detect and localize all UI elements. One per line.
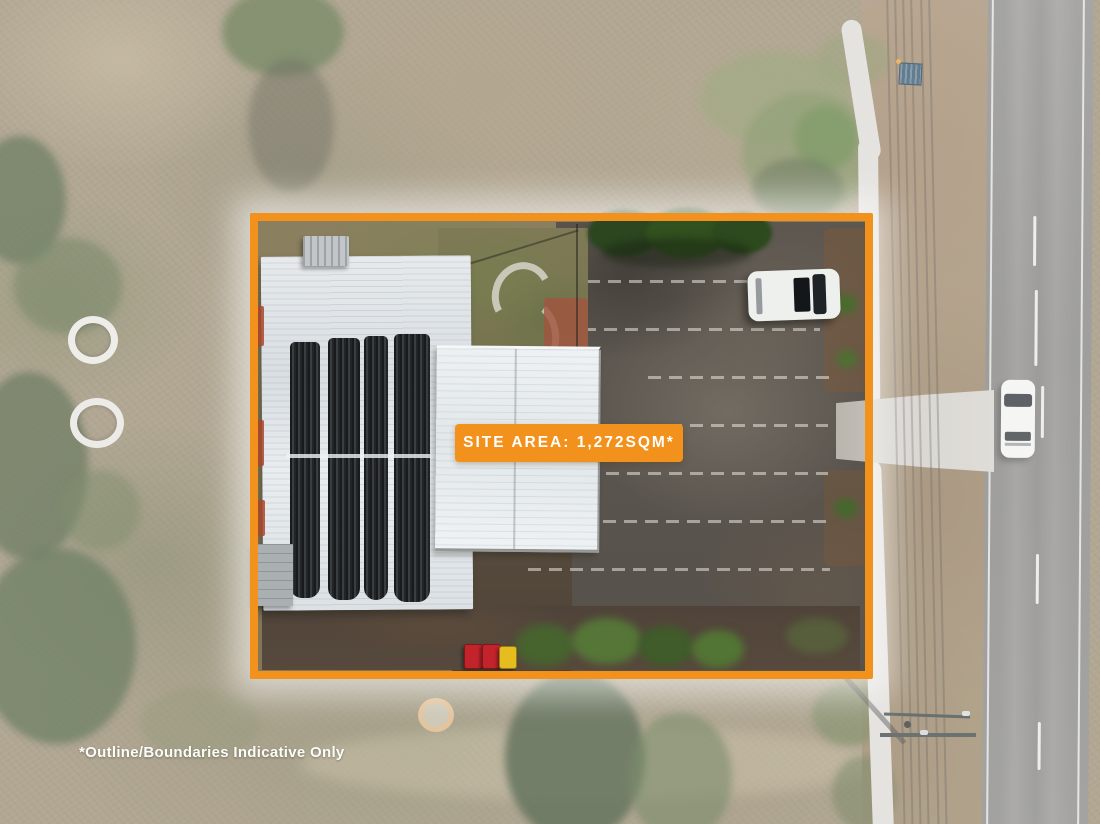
power-pole <box>904 721 911 728</box>
car-on-road <box>1001 380 1036 458</box>
road-center-dash <box>1041 386 1044 438</box>
road-center-dash <box>1033 216 1036 266</box>
ring-marker <box>68 316 118 364</box>
crossarm-insulator <box>920 730 928 735</box>
tree-shadow <box>248 58 334 192</box>
bush-shadow <box>752 158 844 220</box>
ring-marker <box>70 398 124 448</box>
aerial-photo: SITE AREA: 1,272SQM* *Outline/Boundaries… <box>0 0 1100 824</box>
site-area-label: SITE AREA: 1,272SQM* <box>455 424 683 462</box>
utility-sign-box <box>898 62 922 85</box>
road-center-dash <box>1038 722 1041 770</box>
tree-canopy <box>60 470 140 550</box>
crossarm-insulator <box>962 711 970 716</box>
road <box>982 0 1094 824</box>
car-windshield <box>1004 394 1032 407</box>
ring-marker <box>418 698 454 732</box>
site-area-text: SITE AREA: 1,272SQM* <box>463 434 675 452</box>
road-edge-line <box>1077 0 1085 824</box>
disclaimer-text: *Outline/Boundaries Indicative Only <box>79 744 345 761</box>
power-pole-crossarm <box>880 733 976 737</box>
road-center-dash <box>1036 554 1039 604</box>
sign-flame-dot <box>896 59 901 64</box>
car-rear-window <box>1005 432 1031 441</box>
car-roof-line <box>1005 443 1031 446</box>
road-center-dash <box>1034 290 1038 366</box>
